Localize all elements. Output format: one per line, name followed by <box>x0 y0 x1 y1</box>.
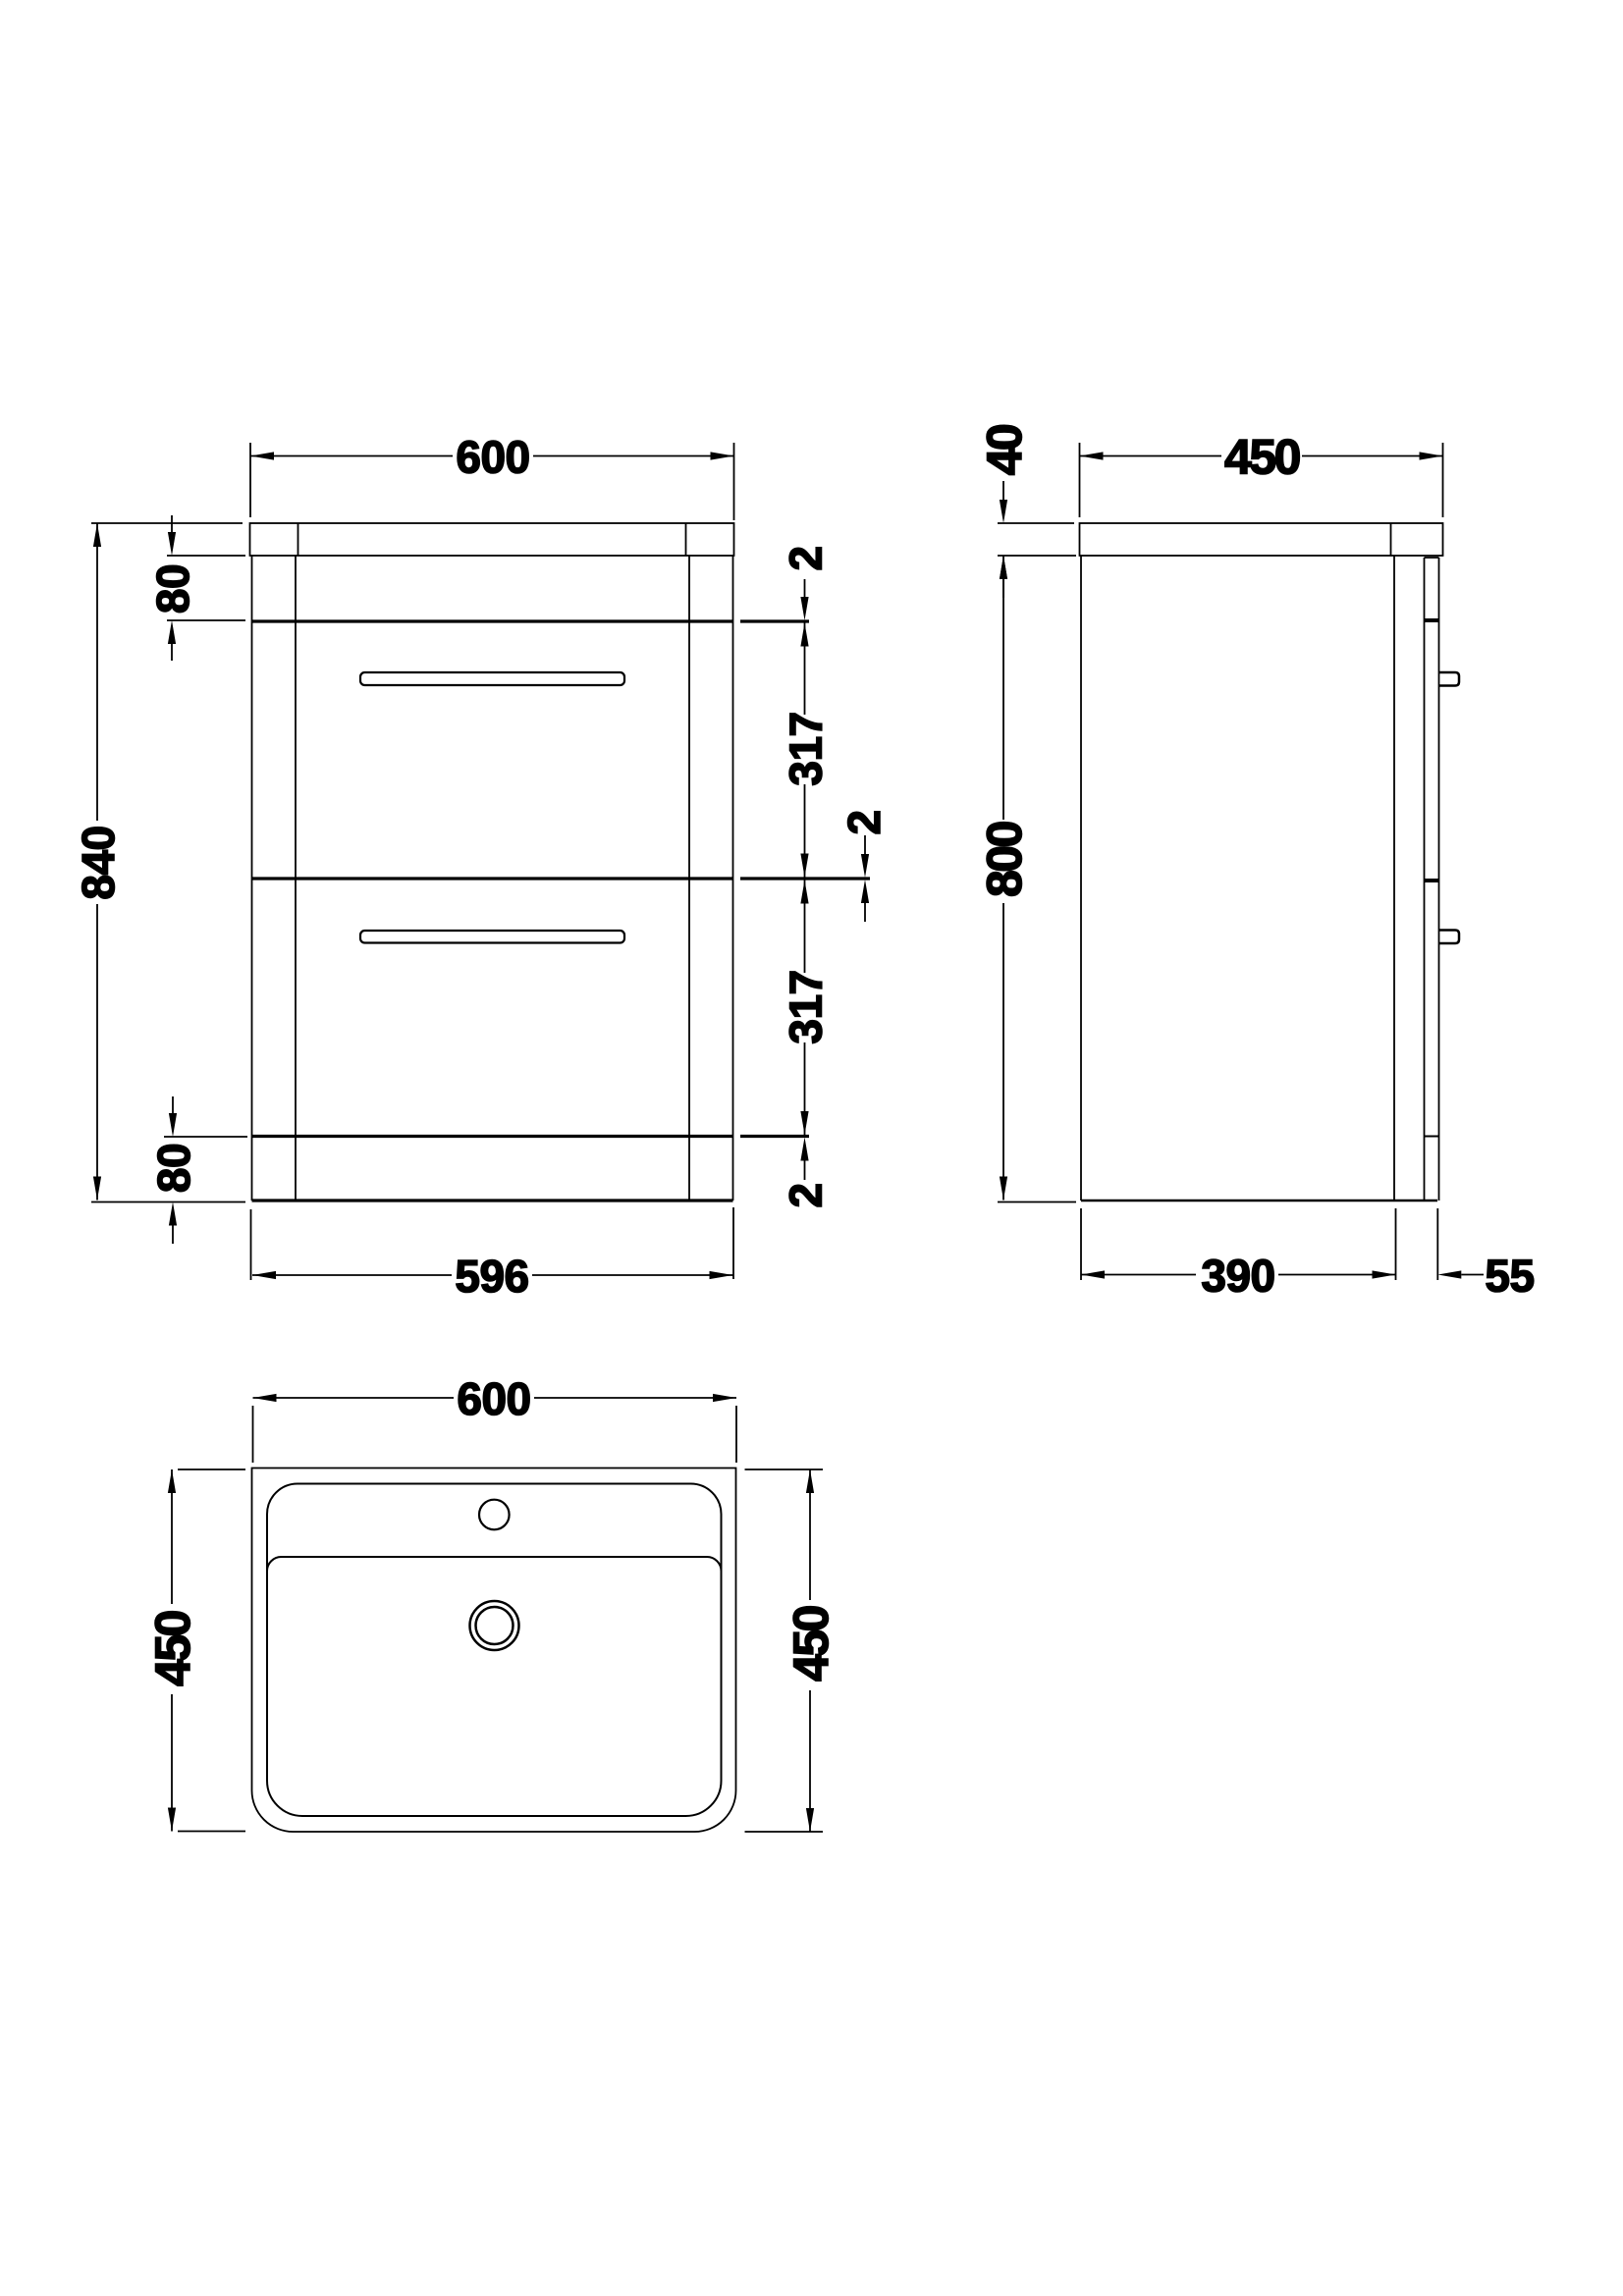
svg-text:600: 600 <box>457 1373 530 1424</box>
svg-text:450: 450 <box>145 1611 200 1686</box>
svg-text:80: 80 <box>148 1144 199 1193</box>
svg-text:390: 390 <box>1201 1251 1274 1302</box>
svg-text:600: 600 <box>456 432 529 483</box>
svg-text:800: 800 <box>977 822 1032 897</box>
svg-text:450: 450 <box>784 1606 839 1682</box>
svg-text:2: 2 <box>781 546 832 570</box>
svg-text:2: 2 <box>839 810 890 834</box>
svg-text:317: 317 <box>781 970 832 1043</box>
svg-text:596: 596 <box>455 1251 528 1302</box>
svg-text:317: 317 <box>781 712 832 785</box>
svg-text:450: 450 <box>1224 430 1300 485</box>
svg-text:2: 2 <box>781 1183 832 1207</box>
svg-text:840: 840 <box>73 826 124 899</box>
svg-text:80: 80 <box>147 564 198 614</box>
svg-text:55: 55 <box>1485 1251 1534 1302</box>
svg-text:40: 40 <box>977 425 1032 475</box>
